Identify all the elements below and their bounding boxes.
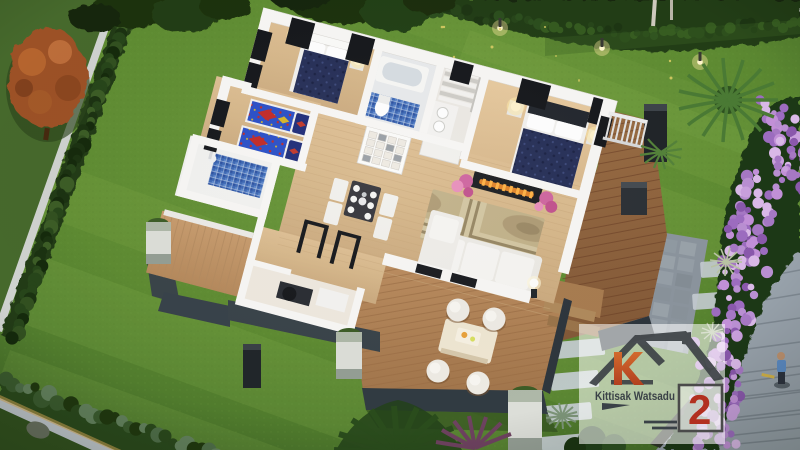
svg-text:Kittisak Watsadu: Kittisak Watsadu	[595, 391, 675, 403]
svg-text:2: 2	[688, 386, 711, 433]
